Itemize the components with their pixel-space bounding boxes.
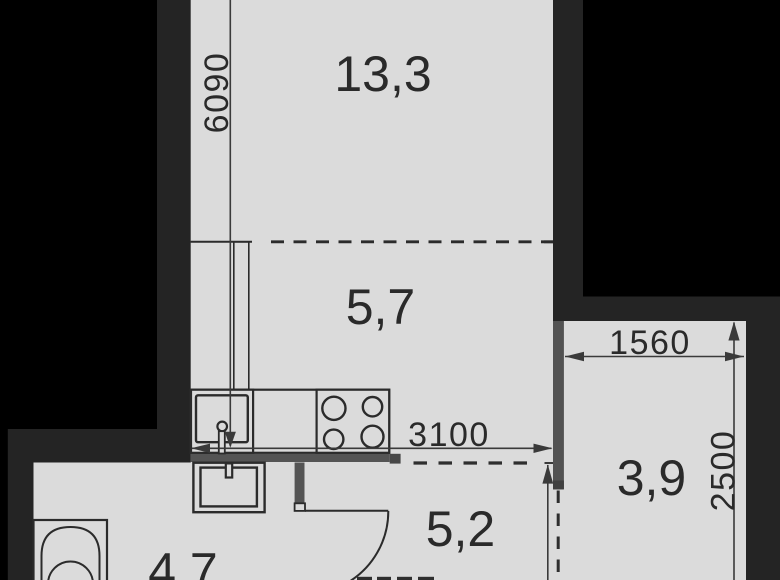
svg-text:4,7: 4,7 [148,543,218,580]
svg-text:3,9: 3,9 [617,450,687,506]
svg-text:6090: 6090 [198,52,236,134]
svg-text:2500: 2500 [705,430,743,512]
svg-text:1560: 1560 [609,324,691,362]
svg-text:13,3: 13,3 [334,46,431,102]
svg-text:5,2: 5,2 [426,501,496,557]
svg-text:3100: 3100 [408,416,490,454]
svg-text:5,7: 5,7 [346,279,416,335]
